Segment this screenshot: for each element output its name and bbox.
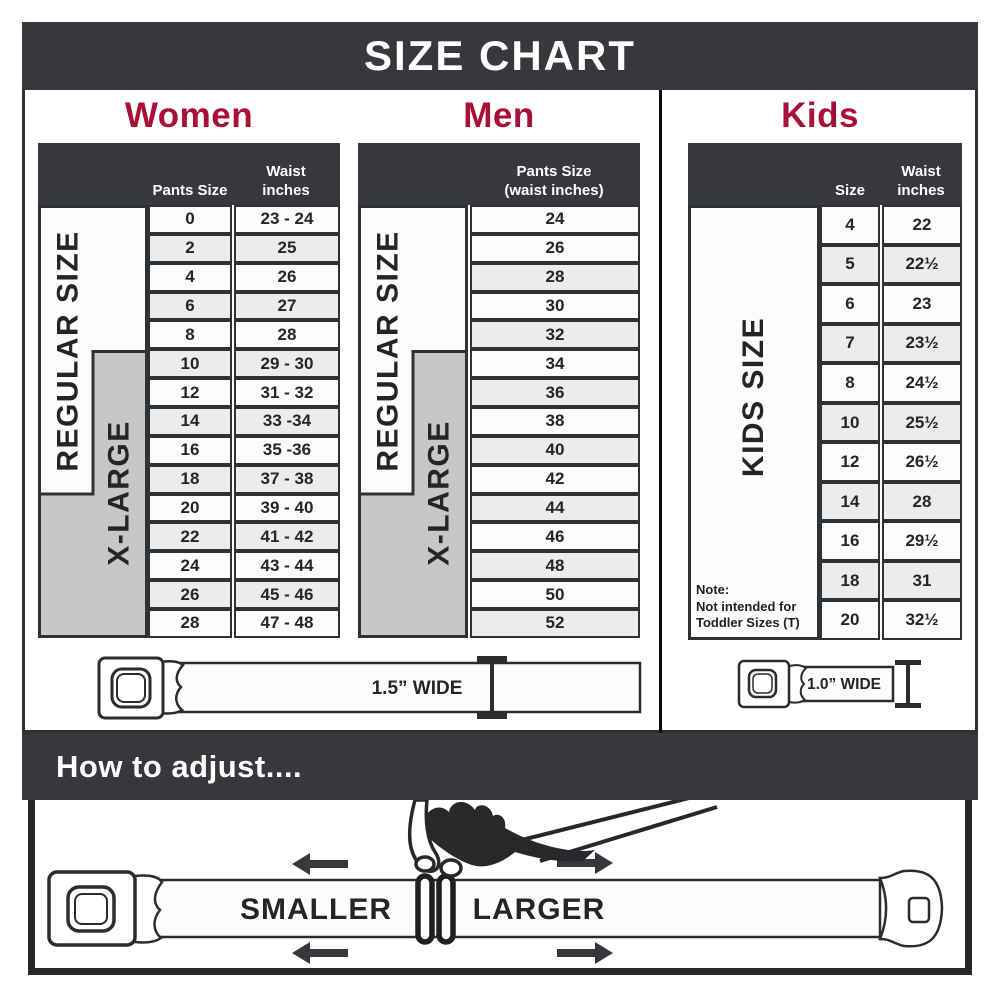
adult-belt-width-label: 1.5” WIDE: [372, 678, 463, 699]
kids-heading: Kids: [662, 96, 978, 136]
kids-size-cell: 4: [820, 205, 880, 245]
men-pants-size-cell: 44: [470, 494, 640, 523]
men-pants-size-cell: 42: [470, 465, 640, 494]
men-pants-size-cell: 46: [470, 522, 640, 551]
men-pants-size-cell: 40: [470, 436, 640, 465]
women-pants-size-cell: 6: [148, 292, 232, 321]
kids-waist-header: Waist inches: [880, 163, 962, 200]
size-chart-page: SIZE CHART Women Men Kids Pants Size Wai…: [0, 0, 1000, 1000]
women-pants-size-cell: 28: [148, 609, 232, 638]
women-table-header: Pants Size Waist inches: [38, 143, 340, 205]
kids-waist-cell: 28: [882, 482, 962, 522]
kids-note-line: Toddler Sizes (T): [696, 615, 818, 632]
women-pants-size-cell: 0: [148, 205, 232, 234]
kids-size-cell: 5: [820, 245, 880, 285]
kids-belt-illustration: 1.0” WIDE: [737, 658, 942, 710]
title-bar: SIZE CHART: [22, 22, 978, 90]
kids-size-cell: 20: [820, 600, 880, 640]
women-waist-cell: 41 - 42: [234, 522, 340, 551]
women-heading: Women: [38, 96, 340, 136]
women-waist-cell: 25: [234, 234, 340, 263]
men-size-range-labels: REGULAR SIZE X-LARGE: [358, 205, 468, 638]
kids-size-label: KIDS SIZE: [737, 317, 771, 477]
men-pants-size-cell: 50: [470, 580, 640, 609]
kids-size-cell: 7: [820, 324, 880, 364]
women-pants-size-cell: 2: [148, 234, 232, 263]
men-table-header: Pants Size (waist inches): [358, 143, 640, 205]
women-waist-column: 23 - 242526272829 - 3031 - 3233 -3435 -3…: [234, 205, 340, 638]
kids-note: Note: Not intended for Toddler Sizes (T): [696, 582, 818, 632]
women-waist-cell: 43 - 44: [234, 551, 340, 580]
women-waist-cell: 35 -36: [234, 436, 340, 465]
how-to-adjust-heading: How to adjust....: [56, 749, 302, 785]
men-pants-size-cell: 30: [470, 292, 640, 321]
women-pants-size-cell: 8: [148, 320, 232, 349]
right-arrow-icon: [557, 942, 613, 964]
women-pants-size-cell: 22: [148, 522, 232, 551]
kids-waist-cell: 23½: [882, 324, 962, 364]
women-waist-cell: 45 - 46: [234, 580, 340, 609]
men-pants-size-cell: 36: [470, 378, 640, 407]
men-pants-size-column: 242628303234363840424446485052: [470, 205, 640, 638]
men-heading: Men: [358, 96, 640, 136]
kids-size-cell: 6: [820, 284, 880, 324]
kids-waist-cell: 32½: [882, 600, 962, 640]
kids-waist-cell: 22½: [882, 245, 962, 285]
women-waist-cell: 39 - 40: [234, 494, 340, 523]
women-pants-size-cell: 12: [148, 378, 232, 407]
left-arrow-icon: [292, 853, 348, 875]
adjust-seatbelt-buckle-icon: [49, 872, 135, 945]
kids-waist-cell: 24½: [882, 363, 962, 403]
women-pants-size-cell: 26: [148, 580, 232, 609]
men-pants-size-cell: 24: [470, 205, 640, 234]
women-waist-cell: 28: [234, 320, 340, 349]
kids-note-line: Note:: [696, 582, 818, 599]
kids-size-cell: 18: [820, 561, 880, 601]
kids-table-header: Size Waist inches: [688, 143, 962, 205]
kids-size-cell: 12: [820, 442, 880, 482]
women-waist-cell: 27: [234, 292, 340, 321]
women-pants-size-header: Pants Size: [148, 182, 232, 200]
kids-waist-cell: 25½: [882, 403, 962, 443]
kids-note-line: Not intended for: [696, 599, 818, 616]
men-pants-size-cell: 32: [470, 320, 640, 349]
kids-waist-cell: 31: [882, 561, 962, 601]
men-pants-size-cell: 48: [470, 551, 640, 580]
women-waist-cell: 47 - 48: [234, 609, 340, 638]
kids-waist-cell: 22: [882, 205, 962, 245]
women-pants-size-cell: 16: [148, 436, 232, 465]
kids-size-label-box: KIDS SIZE Note: Not intended for Toddler…: [688, 205, 820, 640]
kids-size-cell: 16: [820, 521, 880, 561]
kids-size-cell: 8: [820, 363, 880, 403]
kids-waist-cell: 26½: [882, 442, 962, 482]
women-xlarge-label: X-LARGE: [103, 420, 136, 566]
women-pants-size-cell: 20: [148, 494, 232, 523]
men-pants-size-cell: 38: [470, 407, 640, 436]
kids-size-header: Size: [820, 182, 880, 200]
kids-size-column: 45678101214161820: [820, 205, 880, 640]
how-to-adjust-panel: SMALLER LARGER: [28, 800, 972, 975]
women-waist-cell: 29 - 30: [234, 349, 340, 378]
section-divider: [659, 90, 662, 733]
women-waist-header: Waist inches: [232, 163, 340, 200]
women-waist-cell: 33 -34: [234, 407, 340, 436]
kids-size-cell: 10: [820, 403, 880, 443]
kids-seatbelt-buckle-icon: [739, 661, 789, 707]
kids-waist-column: 2222½2323½24½25½26½2829½3132½: [882, 205, 962, 640]
kids-waist-cell: 23: [882, 284, 962, 324]
width-measure-icon: [895, 660, 921, 708]
men-pants-size-cell: 26: [470, 234, 640, 263]
smaller-label: SMALLER: [240, 893, 392, 926]
men-xlarge-label: X-LARGE: [423, 420, 456, 566]
kids-size-cell: 14: [820, 482, 880, 522]
page-title: SIZE CHART: [364, 32, 636, 80]
women-pants-size-cell: 14: [148, 407, 232, 436]
women-pants-size-cell: 18: [148, 465, 232, 494]
adjust-illustration: SMALLER LARGER: [35, 800, 965, 968]
left-arrow-icon: [292, 942, 348, 964]
women-regular-size-label: REGULAR SIZE: [52, 230, 85, 471]
women-pants-size-cell: 4: [148, 263, 232, 292]
women-pants-size-cell: 24: [148, 551, 232, 580]
women-waist-cell: 23 - 24: [234, 205, 340, 234]
seatbelt-buckle-icon: [99, 658, 163, 718]
women-waist-cell: 31 - 32: [234, 378, 340, 407]
men-pants-size-cell: 28: [470, 263, 640, 292]
men-pants-size-cell: 52: [470, 609, 640, 638]
men-pants-size-header: Pants Size (waist inches): [468, 163, 640, 200]
men-regular-size-label: REGULAR SIZE: [372, 230, 405, 471]
kids-belt-width-label: 1.0” WIDE: [807, 676, 881, 693]
how-to-adjust-bar: How to adjust....: [22, 733, 978, 800]
women-pants-size-cell: 10: [148, 349, 232, 378]
adult-belt-illustration: 1.5” WIDE: [95, 650, 647, 725]
women-pants-size-column: 0246810121416182022242628: [148, 205, 232, 638]
kids-waist-cell: 29½: [882, 521, 962, 561]
men-pants-size-cell: 34: [470, 349, 640, 378]
larger-label: LARGER: [473, 893, 606, 926]
belt-tip-slot: [909, 898, 929, 922]
kids-buckle-tab: [789, 665, 806, 702]
women-size-range-labels: REGULAR SIZE X-LARGE: [38, 205, 148, 638]
women-waist-cell: 26: [234, 263, 340, 292]
women-waist-cell: 37 - 38: [234, 465, 340, 494]
